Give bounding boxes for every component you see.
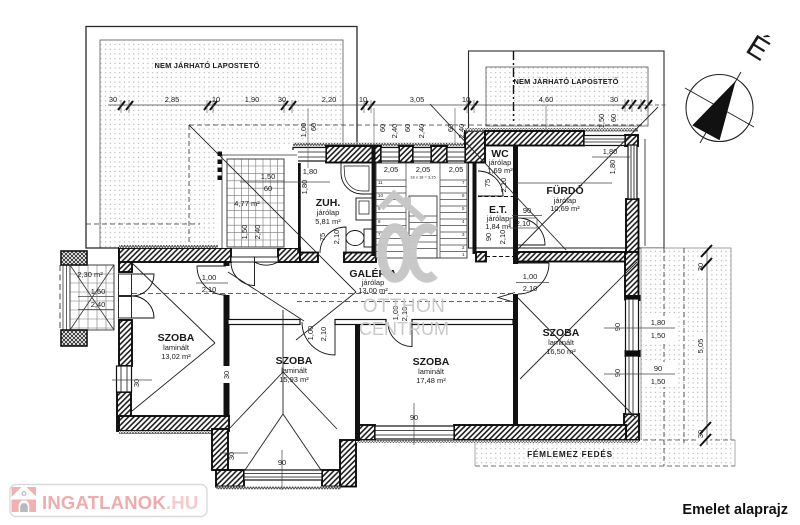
svg-text:NEM JÁRHATÓ LAPOSTETŐ: NEM JÁRHATÓ LAPOSTETŐ xyxy=(154,61,259,70)
svg-text:járólap: járólap xyxy=(316,208,340,217)
svg-text:CENTRUM: CENTRUM xyxy=(359,319,449,339)
svg-text:laminált: laminált xyxy=(548,338,575,347)
svg-text:Emelet alaprajz: Emelet alaprajz xyxy=(682,502,788,518)
svg-text:2,85: 2,85 xyxy=(165,95,180,104)
svg-text:2,10: 2,10 xyxy=(523,284,538,293)
svg-text:2,05: 2,05 xyxy=(384,165,399,174)
svg-text:2,10: 2,10 xyxy=(516,219,531,228)
svg-text:1,50: 1,50 xyxy=(240,225,249,240)
svg-text:30: 30 xyxy=(696,430,705,438)
svg-text:1,50: 1,50 xyxy=(597,114,606,129)
svg-text:1,00: 1,00 xyxy=(202,273,217,282)
svg-text:2,10: 2,10 xyxy=(319,327,328,342)
svg-text:1,90: 1,90 xyxy=(245,95,260,104)
svg-text:60: 60 xyxy=(309,123,318,131)
svg-text:15,93 m²: 15,93 m² xyxy=(279,375,309,384)
svg-text:1,80: 1,80 xyxy=(608,160,617,175)
svg-text:1,80: 1,80 xyxy=(651,318,666,327)
svg-text:60: 60 xyxy=(609,114,618,122)
svg-text:2,10: 2,10 xyxy=(202,285,217,294)
svg-text:laminált: laminált xyxy=(281,366,308,375)
svg-text:1,50: 1,50 xyxy=(651,331,666,340)
svg-text:60: 60 xyxy=(403,124,412,132)
svg-text:17,48 m²: 17,48 m² xyxy=(416,376,446,385)
svg-text:75: 75 xyxy=(318,233,327,241)
svg-text:2,30 m²: 2,30 m² xyxy=(77,270,103,279)
svg-text:2,40: 2,40 xyxy=(253,225,262,240)
svg-text:30: 30 xyxy=(278,95,286,104)
svg-text:1,69 m²: 1,69 m² xyxy=(487,166,513,175)
svg-text:1,00: 1,00 xyxy=(306,326,315,341)
svg-text:1,80: 1,80 xyxy=(300,180,309,195)
svg-text:60: 60 xyxy=(264,184,272,193)
svg-text:4,60: 4,60 xyxy=(539,95,554,104)
svg-text:1,00: 1,00 xyxy=(523,272,538,281)
svg-text:2,10: 2,10 xyxy=(498,230,507,245)
svg-text:1,50: 1,50 xyxy=(651,377,666,386)
svg-text:90: 90 xyxy=(523,206,531,215)
svg-text:4,77 m²: 4,77 m² xyxy=(234,199,260,208)
svg-text:75: 75 xyxy=(483,179,492,187)
svg-text:30: 30 xyxy=(696,263,705,271)
svg-text:3,05: 3,05 xyxy=(410,95,425,104)
svg-text:10: 10 xyxy=(359,95,367,104)
svg-text:1,50: 1,50 xyxy=(261,172,276,181)
svg-text:2,10: 2,10 xyxy=(499,178,508,193)
svg-text:1,80: 1,80 xyxy=(603,147,618,156)
svg-text:NEM JÁRHATÓ LAPOSTETŐ: NEM JÁRHATÓ LAPOSTETŐ xyxy=(513,77,618,86)
svg-text:30: 30 xyxy=(222,371,231,379)
svg-text:60: 60 xyxy=(378,124,387,132)
svg-text:30: 30 xyxy=(109,95,117,104)
svg-text:2,40: 2,40 xyxy=(91,300,106,309)
svg-text:2,40: 2,40 xyxy=(417,124,426,139)
svg-text:11: 11 xyxy=(378,180,383,185)
svg-text:18 x 18 = 3,15: 18 x 18 = 3,15 xyxy=(410,175,436,180)
svg-text:laminált: laminált xyxy=(418,367,445,376)
svg-text:2,20: 2,20 xyxy=(322,95,337,104)
svg-text:10: 10 xyxy=(212,95,220,104)
svg-text:1,84 m²: 1,84 m² xyxy=(485,222,511,231)
svg-text:30: 30 xyxy=(610,95,618,104)
svg-text:2,05: 2,05 xyxy=(449,165,464,174)
svg-text:2,40: 2,40 xyxy=(390,124,399,139)
svg-text:16,50 m²: 16,50 m² xyxy=(546,347,576,356)
svg-text:10,69 m²: 10,69 m² xyxy=(550,204,580,213)
svg-text:13,00 m²: 13,00 m² xyxy=(358,286,388,295)
svg-text:2,05: 2,05 xyxy=(416,165,431,174)
svg-text:FÉMLEMEZ FEDÉS: FÉMLEMEZ FEDÉS xyxy=(527,449,613,459)
svg-text:2,10: 2,10 xyxy=(332,230,341,245)
svg-text:OTTHON: OTTHON xyxy=(363,296,446,317)
svg-text:5,05: 5,05 xyxy=(696,339,705,354)
svg-text:1,80: 1,80 xyxy=(303,167,318,176)
svg-text:90: 90 xyxy=(613,369,622,377)
svg-text:1,50: 1,50 xyxy=(91,287,106,296)
svg-text:1,00: 1,00 xyxy=(299,123,308,138)
svg-text:5,81 m²: 5,81 m² xyxy=(315,217,341,226)
svg-text:INGATLANOK.HU: INGATLANOK.HU xyxy=(42,492,198,513)
svg-text:90: 90 xyxy=(654,364,662,373)
svg-text:60: 60 xyxy=(446,124,455,132)
svg-text:10: 10 xyxy=(462,95,470,104)
svg-text:laminált: laminált xyxy=(163,343,190,352)
svg-text:90: 90 xyxy=(484,233,493,241)
svg-text:10: 10 xyxy=(378,193,384,198)
svg-text:13,02 m²: 13,02 m² xyxy=(161,352,191,361)
svg-text:90: 90 xyxy=(613,323,622,331)
